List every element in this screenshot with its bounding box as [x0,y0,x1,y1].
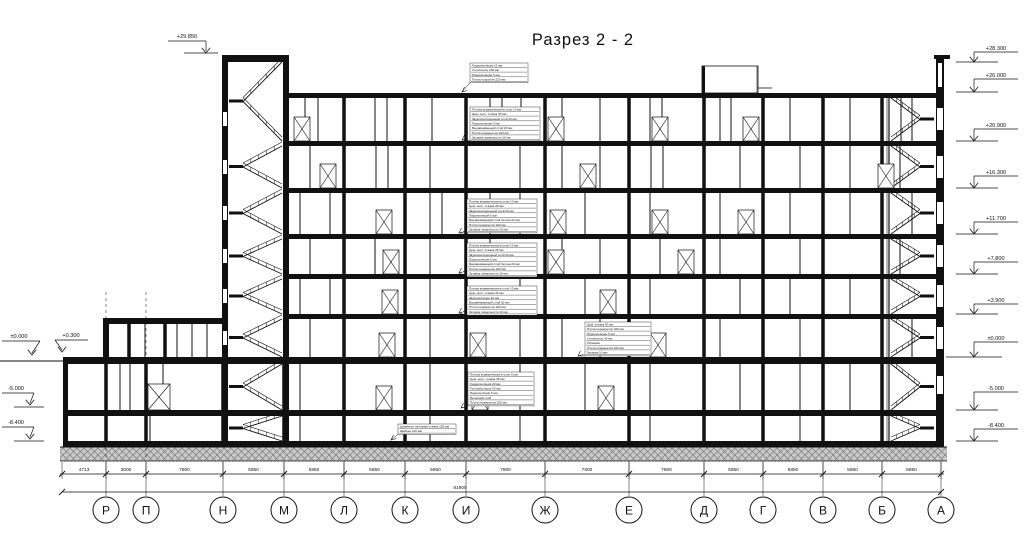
column [464,98,468,141]
dimension-label: 7800 [179,467,190,473]
column [342,239,346,274]
column [761,416,765,441]
callout-line: Плитка керамическая в слое 10 мм [469,199,518,203]
column [702,416,706,441]
axis-label: Н [219,504,228,518]
callout-line: Звукоизоляционный слой 20 мм [469,209,514,213]
column [543,146,547,188]
floor-slab-7800 [285,274,944,279]
callout-line: Затирка поверхности 10 мм [469,310,508,314]
callout-line: Пароизоляция 5 мм [587,332,615,336]
dimension-label: 5850 [309,467,320,473]
stair-flight [243,193,282,214]
floor-slab-20900 [285,141,944,146]
total-dimension-label: 81900 [453,485,467,491]
axis-label: Д [700,504,708,518]
annex-roof-slab [103,318,224,324]
callout-line: Затирка поверхности 10 мм [469,228,508,232]
elevation-label: -8.400 [988,423,1004,429]
column [821,146,825,188]
ground-hatch [60,447,947,461]
column [880,364,884,410]
column [761,364,765,410]
drawing-title: Разрез 2 - 2 [532,31,634,49]
window-opening [223,331,227,345]
callout-line: Плита перекрытия 220 мм [472,131,509,135]
stair-railing [243,315,282,334]
callout-line: Плита перекрытия 220 мм [587,346,624,350]
callout-line: Пароизоляция 5 мм [469,214,497,218]
stair-flight [243,429,282,442]
column [403,279,407,314]
callout-line: Плита перекрытия 220 мм [587,327,624,331]
elevation-label: -8.400 [8,420,24,426]
window-opening [937,156,943,178]
foundation-slab [63,441,944,447]
column [403,146,407,188]
stair-landing [920,295,934,298]
stair-railing [891,116,920,138]
elevation-label: +20.900 [986,123,1006,129]
stair-railing [243,142,282,163]
column [221,364,225,410]
callout-line: Звукоизоляция 20 мм [469,296,499,300]
column [543,239,547,274]
window-opening [223,289,227,303]
callout-line: Плитка керамическая в слое 10 мм [472,107,521,111]
dimension-label: 3000 [121,467,132,473]
dimension-label: 5850 [847,467,858,473]
column [127,324,131,357]
stair-flight [243,62,282,102]
right-parapet-cap [934,55,950,59]
stair-flight [243,364,282,387]
column [543,193,547,234]
section-drawing-sheet: Разрез 2 - 2 +29.850±0.000+0.300-5.000-8… [0,0,1024,549]
callout-arrow-icon [459,268,465,273]
stair-railing [891,293,920,311]
column [543,416,547,441]
stair-flight [243,297,282,315]
dimension-label: 5850 [248,467,259,473]
window-opening [223,112,227,126]
stair-railing [891,253,920,271]
dimension-label: 5850 [906,467,917,473]
stair-flight [891,387,920,410]
callout-line: Выравнивающий слой 20 мм [469,301,509,305]
elevation-label: -5.000 [8,386,24,392]
column [880,319,884,357]
column [342,416,346,441]
stair-flight [891,98,920,120]
window-opening [223,160,227,174]
callout-line: Выравнивающий слой 20 мм [472,126,512,130]
section-drawing: Разрез 2 - 2 +29.850±0.000+0.300-5.000-8… [0,0,1024,549]
callout-line: Цем. стяжка 50 мм [587,322,613,326]
axis-label: Г [760,504,767,518]
callout-line: Цем.-песч. стяжка 35 мм [469,248,503,252]
floor-slab-11700 [285,234,944,239]
floor-slab-16300 [285,188,944,193]
stair-railing [243,163,282,184]
callout-arrow-icon [459,228,465,233]
column [403,364,407,410]
axis-label: В [819,504,827,518]
parapet-opening [938,63,942,87]
callout-line: Плита перекрытия 220 мм [469,267,506,271]
callout-line: Затирка 10 мм [587,351,607,355]
column [821,279,825,314]
column [702,279,706,314]
dimension-label: 5850 [728,467,739,473]
callout-line: Цементно-песчаная стяжка 100 мм [400,424,449,428]
callout-line: Плита покрытия 220 мм [472,78,505,82]
stair-railing [243,253,282,271]
dimension-label: 7800 [500,467,511,473]
stair-railing [891,163,920,184]
column [702,364,706,410]
axis-label: К [402,504,409,518]
dimension-label: 5850 [369,467,380,473]
stair-landing [920,385,934,388]
axis-label: Е [625,504,633,518]
callout-line: Цем.-песч. стяжка 35 мм [472,112,506,116]
window-opening [937,327,943,349]
dimension-label: 5850 [788,467,799,473]
dimension-label: 4713 [79,467,90,473]
column [543,319,547,357]
column [403,319,407,357]
axis-label: Б [878,504,886,518]
callout-arrow-icon [578,351,584,356]
elevation-label: +29.850 [177,34,197,40]
stair-railing [243,383,282,406]
stair-landing [229,295,243,298]
elevation-label: +3.900 [987,298,1004,304]
axis-label: И [462,504,471,518]
window-opening [937,376,943,394]
dimension-label: 5850 [430,467,441,473]
elevation-label: +26.000 [986,73,1006,79]
callout-line: Гидроизоляция 20 мм [470,382,500,386]
column [880,416,884,441]
stair-landing [920,118,934,121]
left-basement-wall [63,357,68,447]
stair-flight [891,146,920,167]
stair-flight [243,214,282,235]
callout-line: Цем.-песч. стяжка 35 мм [470,377,504,381]
basement-floor-slab [63,410,944,416]
column [342,193,346,234]
column [821,416,825,441]
stair-landing [229,385,243,388]
column [464,416,468,441]
column [464,319,468,357]
column [342,364,346,410]
dimension-label: 7800 [661,467,672,473]
callout-line: Обшивка [587,341,600,345]
column [221,416,225,441]
stair-flight [891,338,920,357]
axis-label: М [279,504,289,518]
axis-label: А [937,504,945,518]
stair-flight [243,239,282,257]
column [403,193,407,234]
axis-label: Ж [539,504,550,518]
column [342,279,346,314]
column [543,279,547,314]
column [761,146,765,188]
elevation-label: +11.700 [986,216,1006,222]
column [702,193,706,234]
callout-line: Выравнивающий слой бетона 20 мм [469,218,520,222]
stairs [229,58,934,441]
column [543,364,547,410]
column [464,364,468,410]
stair-flight [243,387,282,410]
window-opening [937,245,943,267]
stair-flight [243,146,282,167]
column [702,146,706,188]
stair-railing [243,98,282,138]
elevation-label: -5.000 [988,386,1004,392]
column [163,324,167,357]
stair-flight [891,214,920,235]
dimension-lines: 4713300078005850585058505850780076007800… [59,462,944,495]
window-opening [223,206,227,220]
column [761,279,765,314]
stair-railing [891,210,920,231]
callout-line: Плитка керамическая в слое 10 мм [469,243,518,247]
stair-flight [891,297,920,315]
column [627,193,631,234]
dimension-label: 7600 [582,467,593,473]
callout-line: Плита перекрытия 220 мм [470,401,507,405]
elevation-label: ±0.000 [10,334,27,340]
column [282,364,286,410]
window-opening [223,249,227,263]
column [627,239,631,274]
stair-landing [920,427,934,430]
stair-railing [243,58,282,98]
stair-flight [891,319,920,338]
elevation-leader [32,341,40,353]
callout-line: Цем.-песч. стяжка 35 мм [469,204,503,208]
callout-line: Цем.-песч. стяжка 35 мм [469,291,503,295]
stair-railing [243,334,282,353]
rooftop-structure [702,66,758,93]
stair-railing [891,334,920,353]
column [821,239,825,274]
column [627,146,631,188]
stair-landing [920,165,934,168]
column [627,416,631,441]
callout-line: Пароизоляция 5 мм [472,73,500,77]
stair-railing [243,293,282,311]
column [342,98,346,141]
callout-line: Бетонный слой [470,396,491,400]
callout-line: Плита перекрытия 220 мм [469,223,506,227]
stair-flight [243,279,282,297]
column [543,98,547,141]
stair-landing [229,255,243,258]
floor-slab-3900 [285,314,944,319]
column [761,319,765,357]
callout-line: Затирка поверхности 10 мм [469,272,508,276]
stair-landing [920,255,934,258]
stair-landing [920,336,934,339]
stair-landing [229,165,243,168]
elevation-label: +28.300 [986,46,1006,52]
stair-railing [243,275,282,293]
rooftop-structure-wall [702,66,705,93]
column [821,193,825,234]
callout-line: Звукоизоляционный слой 20 мм [472,117,517,121]
stair-landing [920,212,934,215]
elevation-label: ±0.000 [987,336,1004,342]
stair-landing [229,336,243,339]
stair-flight [891,120,920,142]
column [880,98,884,141]
elevation-leader [30,427,34,437]
callout-line: Плитка керамическая в слое 5 мм [470,372,518,376]
column [627,98,631,141]
column [342,146,346,188]
axis-label: Р [102,504,110,518]
column [761,98,765,141]
callout-line: Утеплитель 40 мм [587,337,612,341]
axis-label: Л [340,504,348,518]
stair-flight [243,257,282,275]
column [880,279,884,314]
callout-line: Плитка керамическая в слое 10 мм [469,286,518,290]
callout-line: Пароизоляция 5 мм [469,258,497,262]
callout-line: Гидроизоляция 12 мм [472,63,502,67]
column [282,416,286,441]
stair-flight [243,319,282,338]
callout-line: Теплоизоляция 20 мм [470,387,501,391]
elevation-leader [30,393,34,403]
window-opening [937,108,943,130]
callout-arrow-icon [459,308,465,313]
window-opening [937,285,943,307]
column [821,319,825,357]
stair-flight [891,429,920,442]
stair-flight [891,257,920,275]
stair-flight [243,102,282,142]
column [403,239,407,274]
stair-railing [891,383,920,406]
roof-slab [285,93,944,98]
column [702,239,706,274]
callout-line: Плита перекрытия 220 мм [469,305,506,309]
axis-label: П [142,504,151,518]
stair-flight [891,167,920,188]
stair-landing [229,100,243,103]
stair-flight [243,338,282,357]
ground-floor-slab [63,357,944,364]
stair-railing [243,210,282,231]
stair-flight [891,239,920,257]
column [821,364,825,410]
callout-line: Щебень 120 мм [400,429,422,433]
column [627,364,631,410]
stair-landing [229,427,243,430]
elevation-label: +7.800 [987,256,1004,262]
callout-line: Затирка поверхности 10 мм [472,136,511,140]
elevation-label: +16.300 [986,170,1006,176]
column [880,239,884,274]
column [761,239,765,274]
column [702,319,706,357]
stair-flight [891,364,920,387]
column [821,98,825,141]
column [761,193,765,234]
column [627,279,631,314]
stair-railing [243,189,282,210]
column [342,319,346,357]
elevation-label: +0.300 [62,333,79,339]
callout-line: Пароизоляция 5 мм [472,122,500,126]
column [702,98,706,141]
elevation-leader [55,340,62,350]
window-opening [937,202,943,224]
stair-flight [243,167,282,188]
stair-flight [891,279,920,297]
stair-flight [891,193,920,214]
column [464,146,468,188]
column [403,98,407,141]
callout-line: Утеплитель 150 мм [472,68,499,72]
callout-line: Звукоизоляционный слой 20 мм [469,253,514,257]
stair-railing [243,235,282,253]
stair-landing [229,212,243,215]
callout-line: Выравнивающий слой бетона 20 мм [469,262,520,266]
column [880,193,884,234]
callout-line: Пароизоляция 5 мм [470,391,498,395]
